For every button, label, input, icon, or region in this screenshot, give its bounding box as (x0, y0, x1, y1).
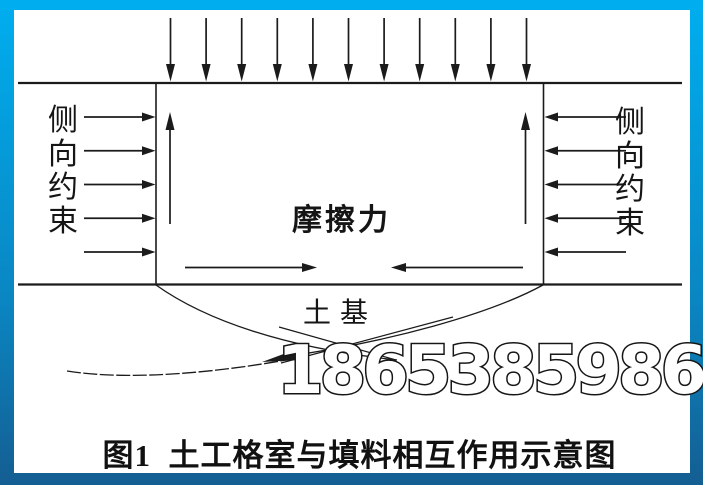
uplift-arrow-head (166, 112, 175, 130)
lateral-confinement-label-left: 侧向约束 (46, 104, 80, 238)
lateral-confinement-label-right: 侧向约束 (613, 106, 647, 240)
soil-foundation-label: 土基 (303, 291, 377, 331)
load-arrow-head (380, 64, 389, 82)
confinement-arrow-head-right (545, 113, 559, 122)
confinement-arrow-head-right (545, 146, 559, 155)
load-arrow-head (237, 64, 246, 82)
geocell-interaction-diagram (0, 0, 703, 485)
load-arrow-head (415, 64, 424, 82)
load-arrow-head (308, 64, 317, 82)
confinement-arrow-head-right (545, 248, 559, 257)
figure-caption: 图1 土工格室与填料相互作用示意图 (103, 430, 617, 475)
photo-frame-border: 侧向约束 侧向约束 摩擦力 土基 18653859869 图1 土工格室与填料相… (0, 0, 703, 485)
watermark-phone-number: 18653859869 (277, 331, 703, 409)
load-arrow-head (522, 64, 531, 82)
load-arrow-head (166, 64, 175, 82)
load-arrow-head (451, 64, 460, 82)
load-arrow-head (273, 64, 282, 82)
friction-arrow-head-right (391, 263, 406, 272)
confinement-arrow-head-right (545, 214, 559, 223)
confinement-arrow-head-left (142, 248, 156, 257)
confinement-arrow-head-left (142, 180, 156, 189)
uplift-arrow-head (521, 112, 530, 130)
friction-arrow-head-left (302, 263, 317, 272)
confinement-arrow-head-left (142, 146, 156, 155)
confinement-arrow-head-right (545, 180, 559, 189)
load-arrow-head (486, 64, 495, 82)
load-arrow-head (344, 64, 353, 82)
confinement-arrow-head-left (142, 113, 156, 122)
friction-force-label: 摩擦力 (292, 195, 391, 239)
confinement-arrow-head-left (142, 214, 156, 223)
load-arrow-head (202, 64, 211, 82)
